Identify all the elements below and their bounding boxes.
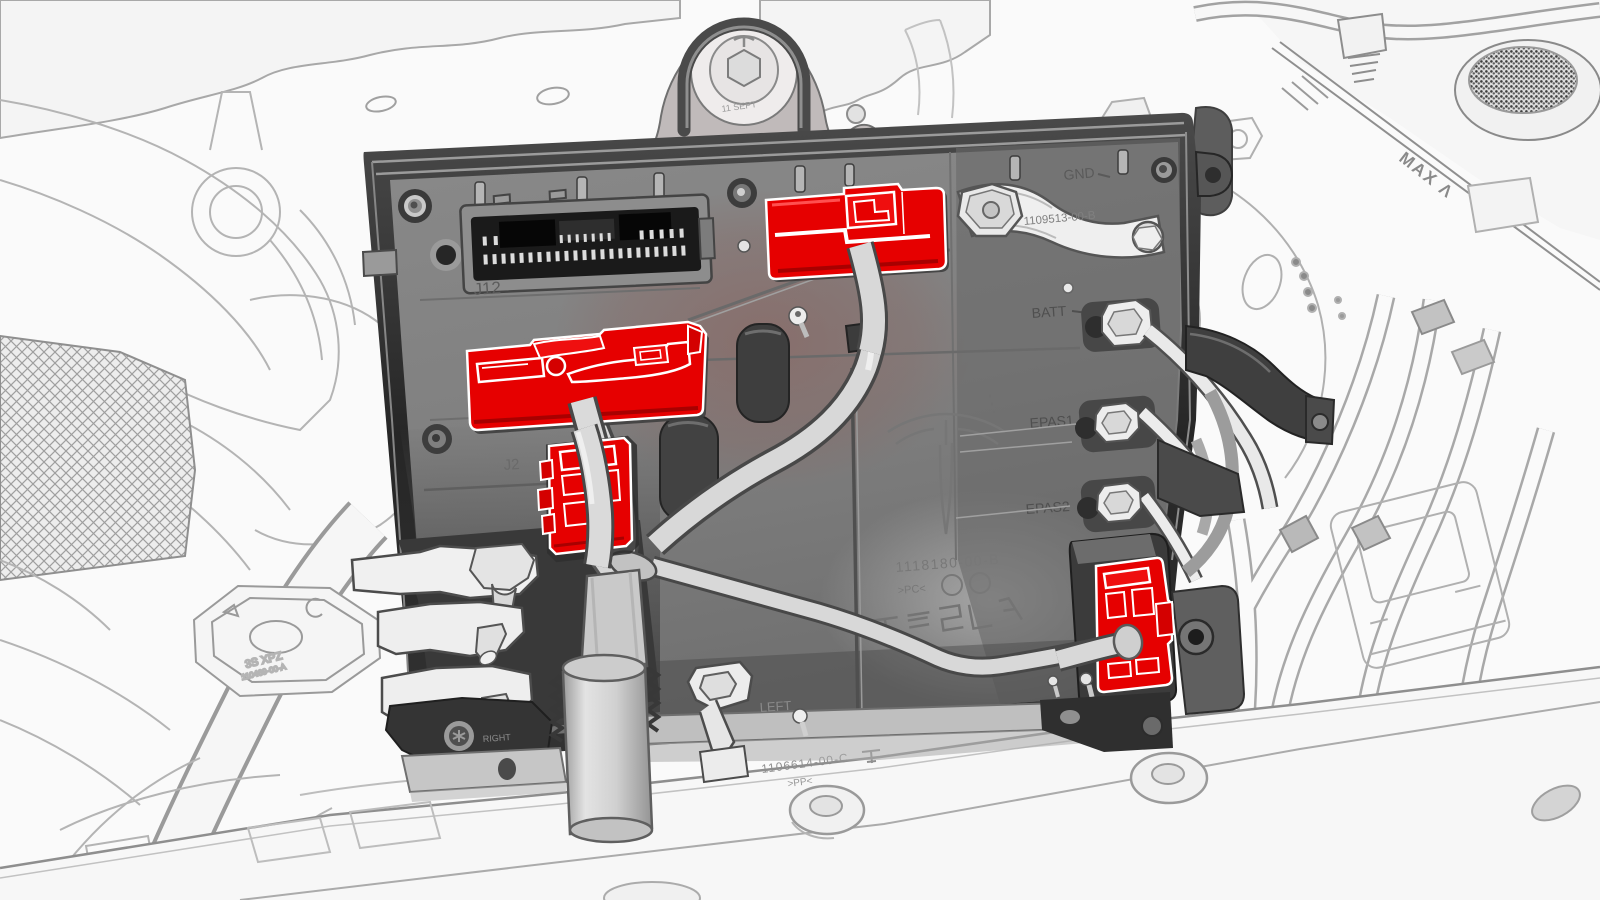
- svg-text:LEFT: LEFT: [759, 698, 792, 715]
- svg-text:GND: GND: [1063, 164, 1095, 183]
- svg-text:J12: J12: [473, 278, 502, 299]
- svg-text:RIGHT: RIGHT: [482, 732, 511, 744]
- svg-text:>PC<: >PC<: [897, 583, 926, 597]
- svg-text:J2: J2: [503, 456, 520, 474]
- svg-text:EPAS2: EPAS2: [1025, 498, 1070, 517]
- svg-text:BATT: BATT: [1031, 303, 1067, 321]
